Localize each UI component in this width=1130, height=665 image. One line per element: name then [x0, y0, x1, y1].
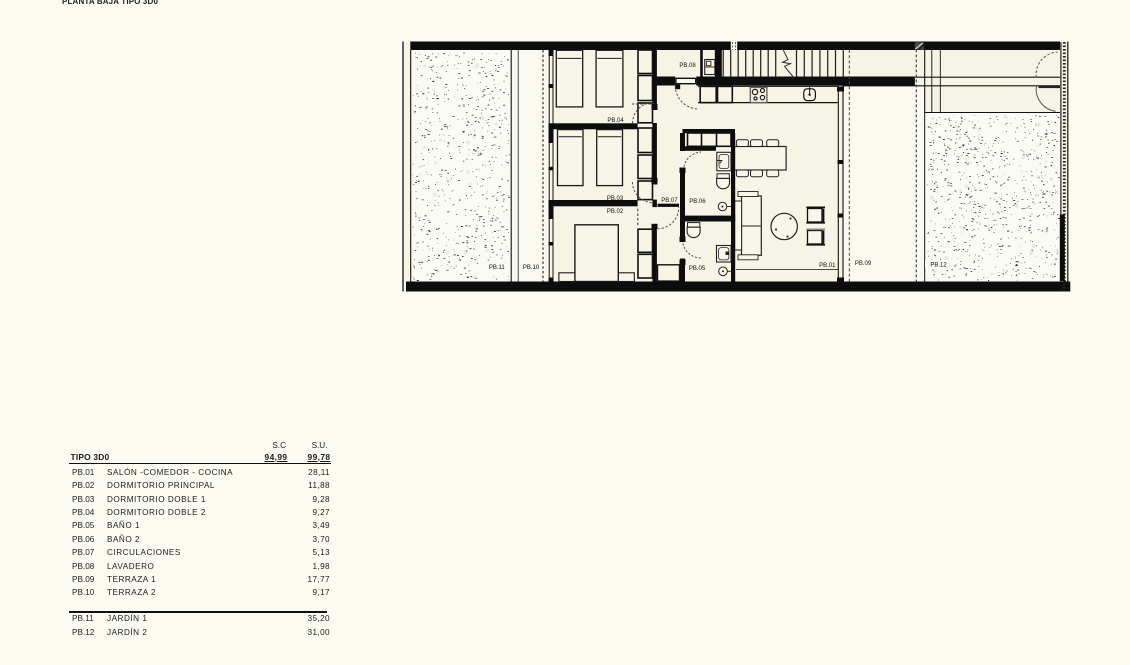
svg-text:PB.08: PB.08 [679, 63, 696, 69]
svg-text:PB.10: PB.10 [523, 265, 540, 271]
svg-text:PB.07: PB.07 [661, 198, 678, 204]
svg-text:PB.06: PB.06 [689, 199, 706, 205]
svg-text:PB.04: PB.04 [607, 118, 624, 124]
svg-text:PB.01: PB.01 [819, 263, 836, 269]
svg-text:PB.03: PB.03 [607, 196, 624, 202]
svg-text:PB.09: PB.09 [855, 261, 872, 267]
svg-text:PB.05: PB.05 [689, 266, 706, 272]
svg-text:PB.02: PB.02 [607, 209, 624, 215]
svg-text:PB.11: PB.11 [489, 265, 506, 271]
svg-text:PB.12: PB.12 [930, 263, 947, 269]
